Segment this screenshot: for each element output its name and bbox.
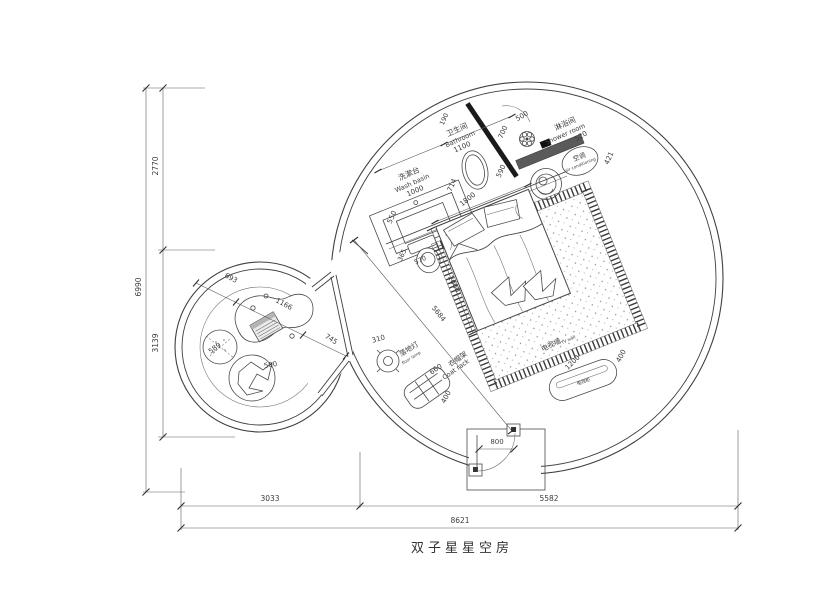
dim-ac-gap: 421 — [603, 150, 616, 165]
dim-bed-width: 1800 — [458, 191, 477, 208]
dim-bath-door: 700 — [497, 124, 510, 139]
dim-entry-door: 800 — [490, 438, 503, 446]
dim-left-upper: 2770 — [151, 156, 160, 175]
dim-bottom-right: 5582 — [539, 494, 558, 503]
dim-lounge-gap-left: 693 — [223, 272, 239, 285]
faucet-icon — [413, 200, 418, 205]
dim-tv-depth: 400 — [615, 348, 628, 364]
floor-plan-canvas: 洗漱台 Wash basin 1000 卫生间 Bathroom 1100 19… — [0, 0, 837, 592]
dim-bottom-left: 3033 — [260, 494, 279, 503]
dim-chair-diameter: 500 — [263, 360, 278, 370]
dim-pouf-diameter: 589 — [207, 341, 223, 355]
bathtub-oval — [458, 148, 492, 192]
shower-head-icon — [520, 132, 535, 147]
dim-shower-door: 500 — [514, 109, 530, 123]
dim-room-diagonal: 5684 — [430, 304, 448, 323]
floor-lamp — [377, 350, 399, 372]
dimension-lines — [143, 85, 742, 532]
dim-shower-width: 590 — [495, 163, 508, 178]
dim-left-total: 6990 — [134, 277, 143, 296]
desk-cup-2 — [290, 334, 294, 338]
dim-wall-stub: 190 — [438, 112, 450, 127]
floor-plan-drawing: 洗漱台 Wash basin 1000 卫生间 Bathroom 1100 19… — [0, 0, 837, 592]
page-title: 双子星星空房 — [411, 540, 513, 556]
dim-toilet-gap: 714 — [446, 177, 459, 193]
corridor-opening-mask — [306, 240, 368, 396]
lounge-zone — [203, 287, 317, 401]
dim-bottom-total: 8621 — [450, 516, 469, 525]
dim-left-lower: 3139 — [151, 333, 160, 352]
dim-lamp-diameter: 310 — [371, 333, 386, 344]
dim-toilet-width: 365 — [396, 248, 408, 263]
